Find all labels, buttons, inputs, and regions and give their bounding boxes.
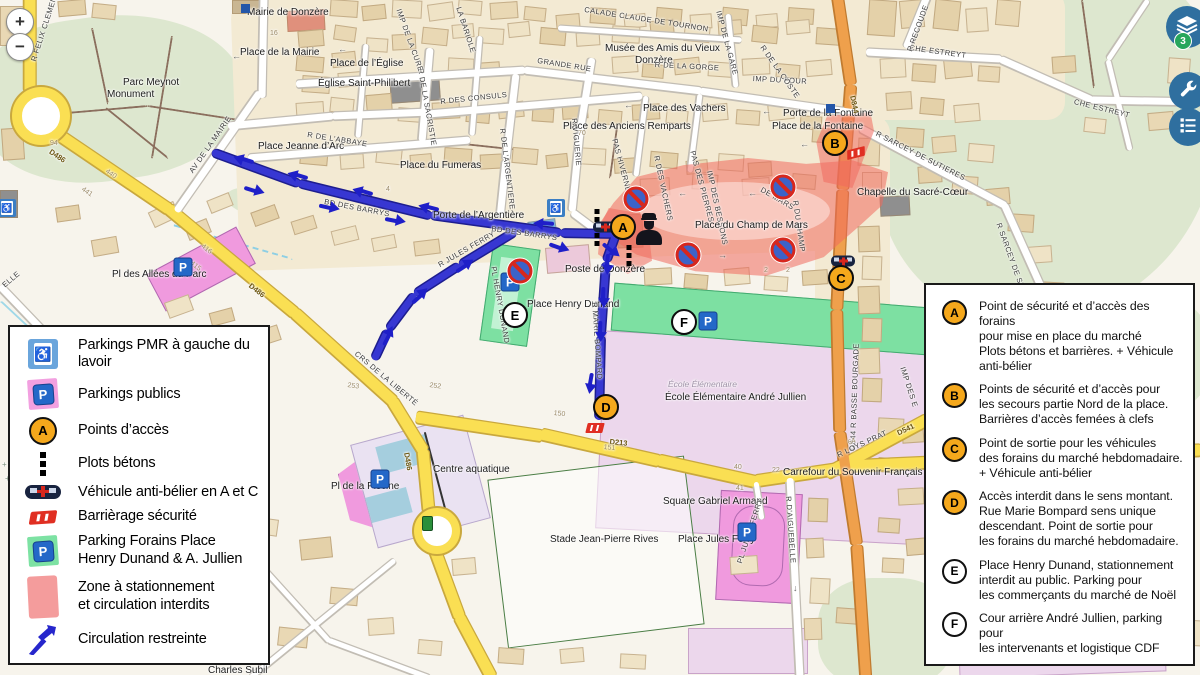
security-barrier-icon xyxy=(585,423,604,433)
legend-item-label: Points d’accès xyxy=(78,422,169,439)
legend-list-button[interactable] xyxy=(1169,108,1200,146)
map-label: 22 xyxy=(772,467,780,475)
map-label: ← xyxy=(624,100,633,110)
legend-item-access-point: APoints d’accès xyxy=(22,417,260,445)
point-marker-f-icon: F xyxy=(942,612,967,637)
map-label: R LOYS PRAT xyxy=(836,429,889,460)
poi-marker-d[interactable]: D xyxy=(593,394,619,420)
map-label: Parc Meynot xyxy=(123,77,179,89)
map-label: Place du Fumeras xyxy=(400,160,481,172)
map-label: R SARCEY DE SUTIERES xyxy=(874,130,966,183)
point-marker-b-icon: B xyxy=(942,383,967,408)
map-label: LA BARIOLE xyxy=(454,6,477,54)
ram-vehicle-legend-icon xyxy=(25,484,61,501)
pmr-icon: ♿ xyxy=(22,339,64,369)
map-label: Musée des Amis du Vieux xyxy=(605,43,720,55)
map-label: D844 R BASSE BOURGADE xyxy=(849,343,861,450)
map-label: Place des Vachers xyxy=(643,103,726,115)
legend-item-parking-forains: PParking Forains Place Henry Dunand & A.… xyxy=(22,533,260,568)
map-label: Église Saint-Philibert xyxy=(318,78,410,90)
legend-point-d: DAccès interdit dans le sens montant. Ru… xyxy=(936,489,1185,549)
map-label: CALADE CLAUDE DE TOURNON xyxy=(584,6,709,34)
no-parking-icon xyxy=(771,238,796,263)
wrench-icon xyxy=(1178,79,1198,104)
map-label: Centre aquatique xyxy=(433,464,510,476)
map-label: R SARCEY DE SU xyxy=(994,222,1026,290)
no-parking-icon xyxy=(771,175,796,200)
circulation-arrow-icon xyxy=(601,254,615,277)
map-label: Charles Subil xyxy=(208,665,267,675)
map-label: AV DE LA MAIRIE xyxy=(188,115,234,175)
parking-public-icon: P xyxy=(22,379,64,409)
pmr-parking-icon: ♿ xyxy=(0,199,16,217)
map-label: D486 xyxy=(47,148,67,165)
legend-item-label: Véhicule anti-bélier en A et C xyxy=(78,484,258,501)
map-label: 441 xyxy=(80,186,94,199)
map-label: ← xyxy=(338,44,347,54)
map-label: 16 xyxy=(270,30,278,38)
map-label: ← xyxy=(696,102,705,112)
map-label: Square Gabriel Armand xyxy=(663,496,768,508)
legend-item-barrier: Barrièrage sécurité xyxy=(22,508,260,525)
map-label: ← xyxy=(762,106,771,116)
bollards-legend-icon xyxy=(40,452,46,476)
map-label: 94 xyxy=(50,140,58,148)
arrow-legend-icon xyxy=(24,625,62,655)
map-label: ELLE xyxy=(1,270,22,290)
map-label: Mairie de Donzère xyxy=(247,7,329,19)
zoom-out-button[interactable]: − xyxy=(6,33,34,61)
legend-point-e: EPlace Henry Dunand, stationnement inter… xyxy=(936,558,1185,603)
poi-marker-b[interactable]: B xyxy=(822,130,848,156)
map-label: ← xyxy=(748,188,757,198)
map-label: R D'AIGUEBELLE xyxy=(783,496,796,564)
legend-map-symbols: ♿Parkings PMR à gauche du lavoirPParking… xyxy=(8,325,270,665)
traffic-light-icon xyxy=(422,516,433,531)
legend-item-label: Parkings PMR à gauche du lavoir xyxy=(78,337,260,372)
map-label: ← xyxy=(800,139,809,149)
map-label: Porte de l’Argentière xyxy=(433,210,524,222)
map-label: ← xyxy=(232,51,241,61)
map-label: École Élémentaire xyxy=(668,380,737,390)
circulation-arrow-icon xyxy=(595,321,608,343)
no-parking-icon xyxy=(508,259,533,284)
map-label: École Élémentaire André Jullien xyxy=(665,392,806,404)
legend-point-text: Place Henry Dunand, stationnement interd… xyxy=(979,558,1176,603)
map-label: R DES CONSULS xyxy=(440,91,508,107)
bollards-icon xyxy=(22,452,64,476)
poi-marker-c[interactable]: C xyxy=(828,265,854,291)
parking-public-legend-icon: P xyxy=(27,378,59,410)
poi-marker-e[interactable]: E xyxy=(502,302,528,328)
poi-marker-a[interactable]: A xyxy=(610,214,636,240)
access-point-icon: A xyxy=(22,417,64,445)
legend-access-points: APoint de sécurité et d’accès des forain… xyxy=(924,283,1195,666)
map-label: 440 xyxy=(104,168,118,181)
legend-point-text: Points de sécurité et d’accès pour les s… xyxy=(979,382,1168,427)
map-label: GRANDE RUE xyxy=(537,57,592,74)
map-label: 2 xyxy=(764,267,768,275)
legend-point-b: BPoints de sécurité et d’accès pour les … xyxy=(936,382,1185,427)
zone-legend-icon xyxy=(27,575,59,619)
legend-item-bollards: Plots bétons xyxy=(22,452,260,476)
map-label: 70 xyxy=(578,130,586,138)
map-label: 40 xyxy=(734,464,742,472)
legend-point-c: CPoint de sortie pour les véhicules des … xyxy=(936,436,1185,481)
legend-item-label: Barrièrage sécurité xyxy=(78,508,197,525)
legend-point-a: APoint de sécurité et d’accès des forain… xyxy=(936,299,1185,374)
map-label: 253 xyxy=(347,382,360,392)
layers-count-badge: 3 xyxy=(1174,32,1192,50)
map-label: D486 xyxy=(402,452,414,471)
map-label: 252 xyxy=(429,382,442,392)
legend-item-zone: Zone à stationnement et circulation inte… xyxy=(22,576,260,618)
no-parking-icon xyxy=(676,243,701,268)
edit-tools-button[interactable] xyxy=(1169,72,1200,110)
parking-icon[interactable]: P xyxy=(699,312,718,331)
map-label: 41 xyxy=(736,485,744,493)
map-label: Monument xyxy=(107,89,154,101)
legend-item-label: Parking Forains Place Henry Dunand & A. … xyxy=(78,533,242,568)
map-application: Mairie de DonzèrePlace de la MairiePlace… xyxy=(0,0,1200,675)
parking-icon[interactable]: P xyxy=(174,258,193,277)
parking-icon[interactable]: P xyxy=(738,523,757,542)
pmr-parking-icon: ♿ xyxy=(547,199,565,217)
ram-vehicle-icon xyxy=(22,484,64,501)
legend-point-text: Cour arrière André Jullien, parking pour… xyxy=(979,611,1185,656)
legend-item-ram-vehicle: Véhicule anti-bélier en A et C xyxy=(22,484,260,501)
legend-point-text: Accès interdit dans le sens montant. Rue… xyxy=(979,489,1179,549)
parking-forains-icon: P xyxy=(22,536,64,566)
map-label: D541 xyxy=(896,422,916,437)
map-label: ↓ xyxy=(793,583,798,593)
map-label: R DE LA SACRISTIE xyxy=(416,68,438,146)
poi-marker-f[interactable]: F xyxy=(671,309,697,335)
map-label: Place de la Fontaine xyxy=(772,121,863,133)
map-label: 150 xyxy=(553,410,565,419)
poi-icon xyxy=(241,4,250,13)
arrow-icon xyxy=(22,625,64,655)
point-marker-d-icon: D xyxy=(942,490,967,515)
map-label: Chapelle du Sacré-Cœur xyxy=(857,187,968,199)
parking-forains-legend-icon: P xyxy=(27,535,59,567)
parking-icon[interactable]: P xyxy=(371,470,390,489)
legend-item-label: Parkings publics xyxy=(78,386,180,403)
map-label: 2 xyxy=(786,267,790,275)
map-label: CRS DE LA LIBERTÉ xyxy=(352,350,419,408)
map-label: 416 xyxy=(199,243,213,257)
map-label: Stade Jean-Pierre Rives xyxy=(550,534,658,546)
map-label: R DE LA GORGE xyxy=(655,61,720,73)
point-marker-e-icon: E xyxy=(942,559,967,584)
map-label: R FELIX CLEMENT xyxy=(30,0,61,63)
map-label: R DES VACHERS xyxy=(652,155,674,222)
legend-point-text: Point de sortie pour les véhicules des f… xyxy=(979,436,1183,481)
map-label: CHE ESTREYT xyxy=(1073,98,1131,120)
point-marker-a-icon: A xyxy=(942,300,967,325)
police-officer-icon xyxy=(635,213,663,245)
map-label: Place de l’Église xyxy=(330,58,403,70)
map-label: IMP DES E xyxy=(898,366,919,408)
map-label: R DE LA COSTE xyxy=(758,44,801,100)
point-marker-c-icon: C xyxy=(942,437,967,462)
circulation-arrow-icon xyxy=(598,287,611,309)
zoom-in-button[interactable]: + xyxy=(6,8,34,36)
map-label: → xyxy=(718,250,727,260)
legend-item-parking-public: PParkings publics xyxy=(22,379,260,409)
pmr-legend-icon: ♿ xyxy=(28,339,58,369)
concrete-bollards-icon xyxy=(627,245,632,269)
legend-item-arrow: Circulation restreinte xyxy=(22,625,260,655)
legend-item-label: Circulation restreinte xyxy=(78,631,207,648)
list-icon xyxy=(1178,115,1198,140)
legend-item-pmr: ♿Parkings PMR à gauche du lavoir xyxy=(22,337,260,372)
circulation-arrow-icon xyxy=(532,217,555,231)
no-parking-icon xyxy=(624,187,649,212)
map-label: 4 xyxy=(386,186,390,194)
map-label: Place du Champ de Mars xyxy=(695,220,808,232)
barrier-legend-icon xyxy=(29,510,58,525)
poi-icon xyxy=(826,104,835,113)
map-label: Place de la Mairie xyxy=(240,47,319,59)
map-label: CHE ESTREYT xyxy=(909,44,967,61)
legend-point-f: FCour arrière André Jullien, parking pou… xyxy=(936,611,1185,656)
zone-icon xyxy=(22,576,64,618)
legend-point-text: Point de sécurité et d’accès des forains… xyxy=(979,299,1185,374)
map-label: D486 xyxy=(247,282,266,300)
map-label: Carrefour du Souvenir Français xyxy=(783,467,923,479)
legend-item-label: Plots bétons xyxy=(78,455,155,472)
barrier-icon xyxy=(22,511,64,524)
map-label: ← xyxy=(678,188,687,198)
map-label: 151 xyxy=(603,444,615,453)
legend-item-label: Zone à stationnement et circulation inte… xyxy=(78,579,214,614)
access-point-legend-icon: A xyxy=(29,417,57,445)
map-label: R DE L’ARGENTIERE xyxy=(497,128,516,210)
